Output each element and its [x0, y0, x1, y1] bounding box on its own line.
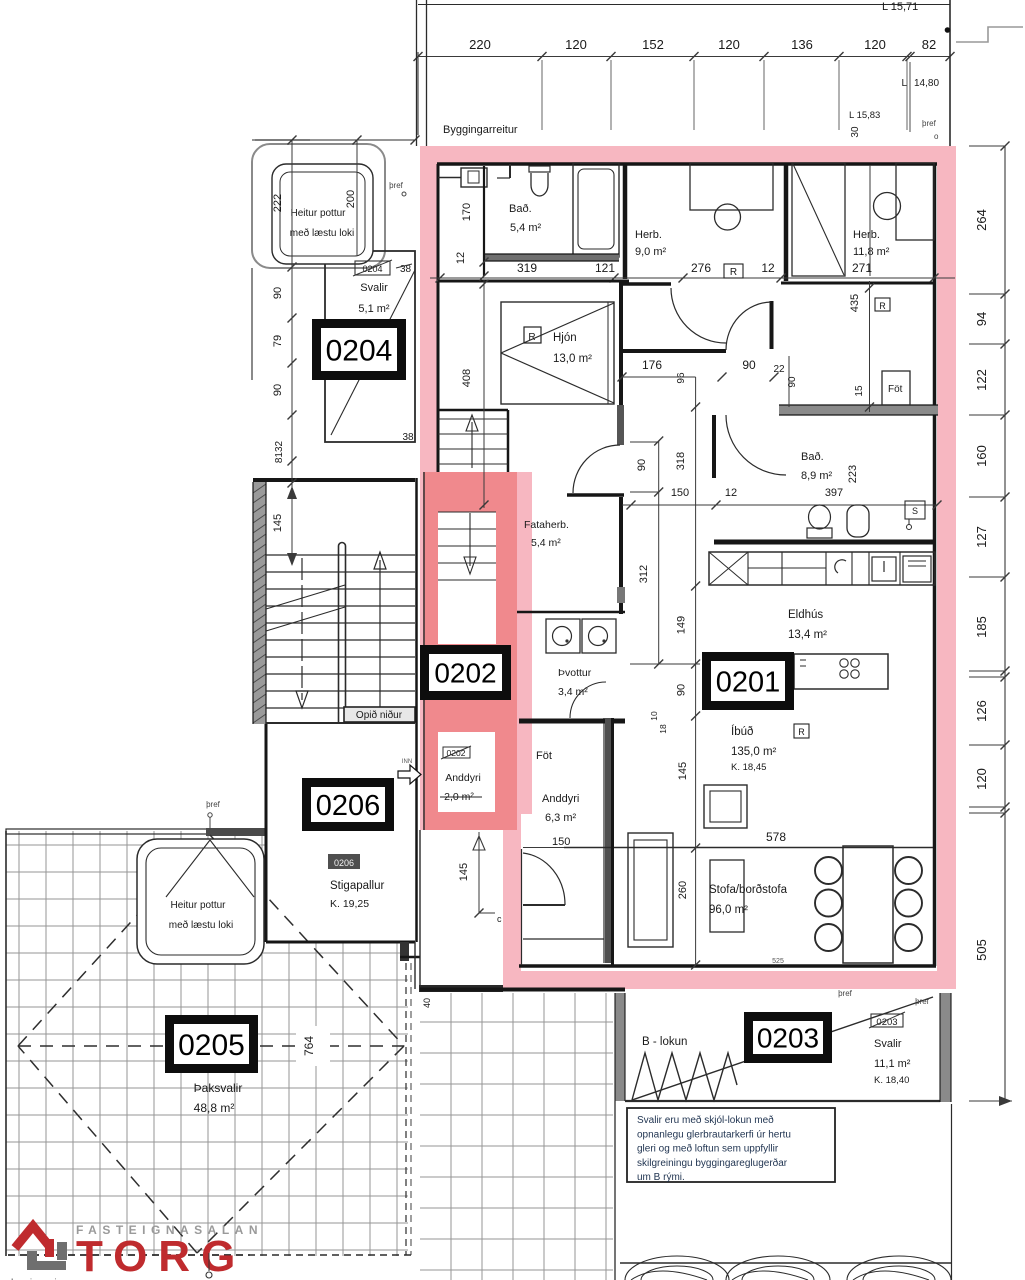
- svg-text:96,0 m²: 96,0 m²: [709, 904, 748, 916]
- svg-text:0203: 0203: [876, 1017, 897, 1028]
- svg-text:L: L: [901, 78, 907, 89]
- svg-text:Þvottur: Þvottur: [558, 667, 592, 679]
- svg-text:79: 79: [272, 335, 284, 347]
- svg-text:9,0 m²: 9,0 m²: [635, 246, 667, 258]
- svg-text:13,0 m²: 13,0 m²: [553, 353, 592, 365]
- svg-text:8132: 8132: [274, 440, 285, 463]
- svg-text:11,8 m²: 11,8 m²: [853, 246, 890, 258]
- svg-text:Bað.: Bað.: [801, 451, 824, 463]
- svg-text:145: 145: [272, 514, 284, 532]
- svg-text:185: 185: [974, 616, 989, 638]
- svg-text:48,8 m²: 48,8 m²: [194, 1101, 235, 1115]
- svg-text:200: 200: [345, 190, 357, 208]
- svg-text:Svalir: Svalir: [360, 282, 388, 294]
- svg-text:525: 525: [772, 958, 784, 965]
- svg-text:82: 82: [922, 37, 936, 52]
- svg-text:Anddyri: Anddyri: [445, 772, 481, 784]
- svg-text:Heitur pottur: Heitur pottur: [170, 900, 226, 911]
- svg-text:319: 319: [517, 261, 537, 275]
- svg-text:R: R: [879, 301, 886, 311]
- svg-text:40: 40: [422, 998, 432, 1008]
- svg-text:10: 10: [649, 711, 659, 721]
- svg-text:Föt: Föt: [536, 750, 552, 762]
- svg-text:Bað.: Bað.: [509, 203, 532, 215]
- svg-text:12: 12: [725, 487, 737, 499]
- svg-text:8,9 m²: 8,9 m²: [801, 470, 833, 482]
- svg-text:271: 271: [852, 261, 872, 275]
- svg-text:K. 18,45: K. 18,45: [731, 762, 766, 773]
- svg-text:þref: þref: [389, 181, 404, 190]
- svg-text:Föt: Föt: [888, 384, 903, 395]
- svg-text:skilgreiningu byggingaregluger: skilgreiningu byggingareglugerðar: [637, 1157, 788, 1169]
- svg-text:127: 127: [974, 526, 989, 548]
- svg-text:R: R: [798, 727, 805, 737]
- svg-text:120: 120: [718, 37, 740, 52]
- svg-text:Opið niður: Opið niður: [356, 709, 403, 721]
- svg-text:K. 19,25: K. 19,25: [330, 898, 369, 910]
- svg-text:152: 152: [642, 37, 664, 52]
- svg-text:Þaksvalir: Þaksvalir: [194, 1081, 243, 1095]
- svg-text:opnanlegu glerbrautarkerfi úr: opnanlegu glerbrautarkerfi úr hertu: [637, 1129, 791, 1140]
- svg-text:90: 90: [742, 358, 756, 372]
- svg-text:15: 15: [854, 385, 865, 397]
- svg-text:260: 260: [677, 881, 689, 899]
- svg-text:þref: þref: [922, 119, 937, 128]
- svg-text:Byggingarreitur: Byggingarreitur: [443, 124, 518, 136]
- svg-text:o: o: [934, 132, 939, 141]
- svg-text:11,1 m²: 11,1 m²: [874, 1058, 911, 1070]
- svg-text:L 15,83: L 15,83: [849, 110, 880, 121]
- svg-text:Eldhús: Eldhús: [788, 609, 823, 621]
- svg-text:TORG: TORG: [76, 1232, 246, 1280]
- svg-text:Anddyri: Anddyri: [542, 793, 579, 805]
- svg-text:R: R: [730, 267, 737, 278]
- svg-text:5,4 m²: 5,4 m²: [510, 222, 542, 234]
- svg-text:145: 145: [677, 762, 689, 780]
- svg-text:264: 264: [974, 209, 989, 231]
- svg-text:Herb.: Herb.: [853, 229, 880, 241]
- svg-text:222: 222: [272, 194, 284, 212]
- svg-text:Svalir eru með skjól-lokun með: Svalir eru með skjól-lokun með: [637, 1114, 774, 1126]
- svg-text:um B rými.: um B rými.: [637, 1172, 685, 1183]
- svg-text:gleri og með loftun sem uppfyl: gleri og með loftun sem uppfyllir: [637, 1143, 779, 1155]
- svg-text:150: 150: [671, 487, 689, 499]
- svg-text:með læstu loki: með læstu loki: [169, 919, 233, 931]
- svg-text:5,1 m²: 5,1 m²: [358, 303, 390, 315]
- svg-text:90: 90: [272, 384, 284, 396]
- svg-text:12: 12: [761, 261, 775, 275]
- svg-text:0204: 0204: [326, 334, 393, 367]
- svg-text:220: 220: [469, 37, 491, 52]
- svg-text:22: 22: [773, 364, 785, 375]
- svg-text:þref: þref: [838, 989, 853, 998]
- svg-text:120: 120: [864, 37, 886, 52]
- svg-text:150: 150: [552, 836, 570, 848]
- svg-text:578: 578: [766, 830, 786, 844]
- svg-text:K. 18,40: K. 18,40: [874, 1075, 909, 1086]
- svg-text:312: 312: [638, 565, 650, 583]
- svg-text:Svalir: Svalir: [874, 1038, 902, 1050]
- svg-text:þref: þref: [915, 997, 930, 1006]
- svg-text:Herb.: Herb.: [635, 229, 662, 241]
- svg-text:14,80: 14,80: [914, 78, 939, 89]
- svg-text:3,4 m²: 3,4 m²: [558, 686, 588, 698]
- svg-text:96: 96: [676, 372, 687, 384]
- svg-text:0202: 0202: [434, 658, 496, 689]
- svg-text:318: 318: [675, 452, 687, 470]
- svg-text:0206: 0206: [334, 858, 354, 868]
- svg-text:505: 505: [974, 939, 989, 961]
- svg-text:0201: 0201: [716, 666, 781, 698]
- svg-text:5,4 m²: 5,4 m²: [531, 537, 561, 549]
- svg-text:121: 121: [595, 261, 615, 275]
- svg-text:INN: INN: [402, 759, 412, 765]
- svg-text:18: 18: [658, 724, 668, 734]
- svg-text:90: 90: [676, 684, 688, 696]
- svg-text:0206: 0206: [316, 790, 381, 822]
- svg-text:Fataherb.: Fataherb.: [524, 519, 569, 531]
- svg-text:Íbúð: Íbúð: [731, 725, 753, 738]
- svg-text:94: 94: [974, 312, 989, 326]
- svg-text:160: 160: [974, 445, 989, 467]
- svg-text:223: 223: [847, 465, 859, 483]
- svg-text:764: 764: [302, 1036, 316, 1056]
- svg-text:149: 149: [676, 616, 688, 634]
- svg-text:122: 122: [974, 369, 989, 391]
- svg-text:c: c: [497, 914, 502, 924]
- svg-text:30: 30: [850, 126, 861, 138]
- svg-text:þref: þref: [206, 800, 221, 809]
- svg-text:B - lokun: B - lokun: [642, 1036, 687, 1048]
- svg-text:með læstu loki: með læstu loki: [290, 227, 354, 239]
- svg-text:126: 126: [974, 700, 989, 722]
- svg-text:135,0 m²: 135,0 m²: [731, 746, 777, 758]
- svg-text:136: 136: [791, 37, 813, 52]
- svg-text:12: 12: [455, 252, 467, 264]
- svg-text:0203: 0203: [757, 1023, 819, 1054]
- svg-text:13,4 m²: 13,4 m²: [788, 629, 827, 641]
- svg-text:397: 397: [825, 487, 843, 499]
- svg-text:408: 408: [461, 369, 473, 387]
- svg-text:6,3 m²: 6,3 m²: [545, 812, 577, 824]
- svg-text:Heitur pottur: Heitur pottur: [290, 208, 346, 219]
- svg-text:0205: 0205: [178, 1029, 245, 1062]
- svg-text:Stigapallur: Stigapallur: [330, 880, 385, 892]
- svg-text:L 15,71: L 15,71: [882, 1, 918, 13]
- svg-text:170: 170: [461, 203, 473, 221]
- svg-text:90: 90: [636, 459, 648, 471]
- svg-text:38: 38: [402, 432, 414, 443]
- svg-text:120: 120: [565, 37, 587, 52]
- svg-text:435: 435: [849, 294, 861, 312]
- svg-text:90: 90: [272, 287, 284, 299]
- svg-text:176: 176: [642, 358, 662, 372]
- svg-text:Hjón: Hjón: [553, 332, 577, 344]
- svg-text:Stofa/borðstofa: Stofa/borðstofa: [709, 884, 788, 896]
- svg-text:276: 276: [691, 261, 711, 275]
- svg-text:R: R: [528, 332, 535, 343]
- svg-text:S: S: [912, 506, 918, 516]
- svg-text:145: 145: [458, 863, 470, 881]
- svg-text:120: 120: [974, 768, 989, 790]
